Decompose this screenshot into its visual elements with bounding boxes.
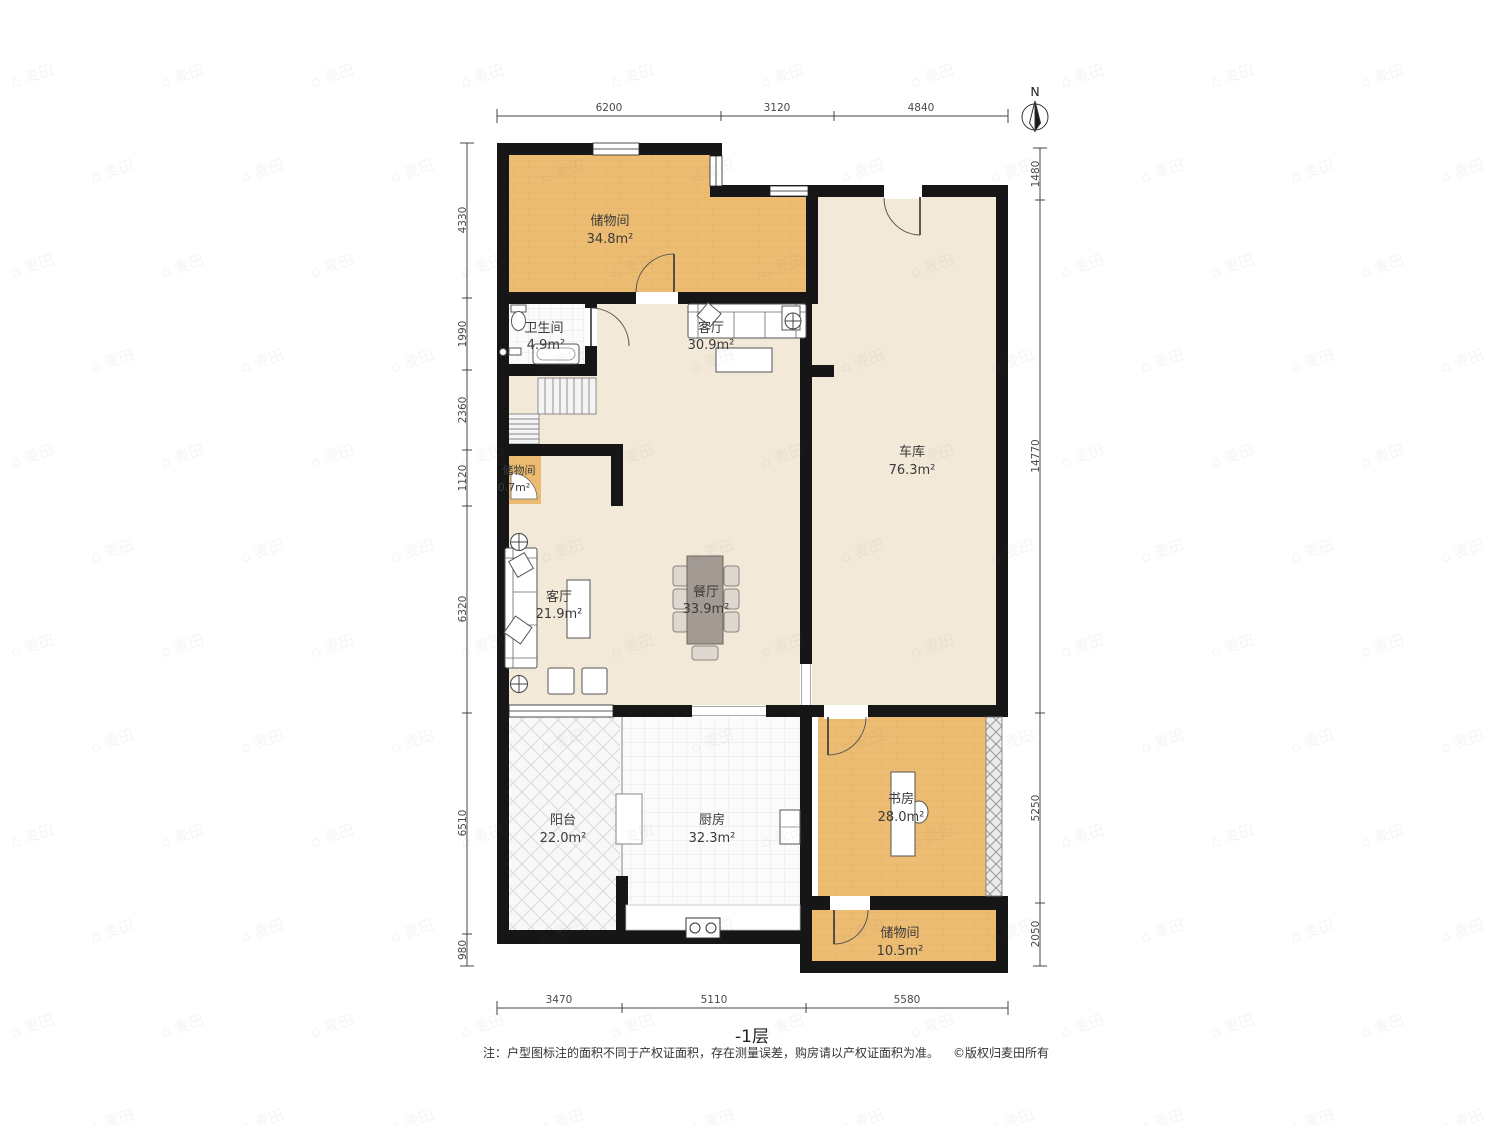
dim-right-4: 2050 [1030,921,1042,948]
dim-top-2: 3120 [764,102,791,114]
room-storage-top-floor [509,155,806,292]
label-living-area: 21.9m² [536,607,583,622]
label-storage-bottom-area: 10.5m² [877,944,924,959]
dining-table [687,556,723,644]
label-storage-small-name: 储物间 [503,463,536,477]
label-living-name: 客厅 [546,589,572,605]
label-living-upper-area: 30.9m² [688,338,735,353]
note-text: 注：户型图标注的面积不同于产权证面积，存在测量误差，购房请以产权证面积为准。 [483,1046,939,1060]
floorplan-drawing: 储物间 34.8m² 卫生间 4.9m² 客厅 30.9m² 车库 76.3m²… [0,0,1500,1125]
dim-left-5: 6320 [457,596,469,623]
window-top-right [770,186,808,196]
label-storage-top-area: 34.8m² [587,232,634,247]
dim-right-2: 14770 [1030,439,1042,472]
label-bathroom-name: 卫生间 [524,321,563,336]
label-garage-name: 车库 [899,444,925,460]
dim-right-3: 5250 [1030,795,1042,822]
floorplan-page: 储物间 34.8m² 卫生间 4.9m² 客厅 30.9m² 车库 76.3m²… [0,0,1500,1125]
label-storage-top-name: 储物间 [590,214,629,229]
label-garage-area: 76.3m² [889,463,936,478]
label-dining-name: 餐厅 [693,584,719,600]
sink [500,348,522,356]
dim-left-6: 6510 [457,810,469,837]
dim-top-1: 6200 [596,102,623,114]
label-kitchen-name: 厨房 [699,812,725,828]
unfinished-wall-hatch [986,717,1002,896]
ottoman [548,668,574,694]
dim-left-1: 4330 [457,207,469,234]
dimension-top: 6200 3120 4840 [497,102,1008,123]
sofa-lower [504,548,537,668]
window-step [710,156,722,186]
label-study-area: 28.0m² [878,810,925,825]
dim-left-3: 2360 [457,397,469,424]
label-kitchen-area: 32.3m² [689,831,736,846]
dim-top-3: 4840 [908,102,935,114]
compass-label: N [1030,84,1039,99]
dim-right-1: 1480 [1030,161,1042,188]
dim-left-4: 1120 [457,465,469,492]
copyright-text: ©版权归麦田所有 [953,1046,1049,1060]
dimension-bottom: 3470 5110 5580 [497,994,1008,1015]
passage-kitchen [692,705,766,717]
label-storage-small-area: 0.7m² [498,481,531,494]
label-balcony-name: 阳台 [550,813,576,828]
dim-left-2: 1990 [457,321,469,348]
dim-bottom-3: 5580 [894,994,921,1006]
label-study-name: 书房 [888,791,914,807]
north-compass-icon: N [1022,84,1048,131]
dim-bottom-1: 3470 [546,994,573,1006]
label-bathroom-area: 4.9m² [527,338,566,353]
label-storage-bottom-name: 储物间 [880,926,919,941]
label-living-upper-name: 客厅 [698,320,724,336]
stove [686,918,720,938]
window-top-left [593,143,639,155]
passage-garage [800,664,812,705]
window-balcony [509,705,613,717]
dim-left-7: 980 [457,940,469,960]
dimension-right: 1480 14770 5250 2050 [1030,148,1047,966]
label-dining-area: 33.9m² [683,602,730,617]
dim-bottom-2: 5110 [701,994,728,1006]
label-balcony-area: 22.0m² [540,831,587,846]
dimension-left: 4330 1990 2360 1120 6320 6510 980 [457,143,474,966]
disclaimer-note: 注：户型图标注的面积不同于产权证面积，存在测量误差，购房请以产权证面积为准。©版… [483,1044,1203,1061]
ottoman [582,668,607,694]
